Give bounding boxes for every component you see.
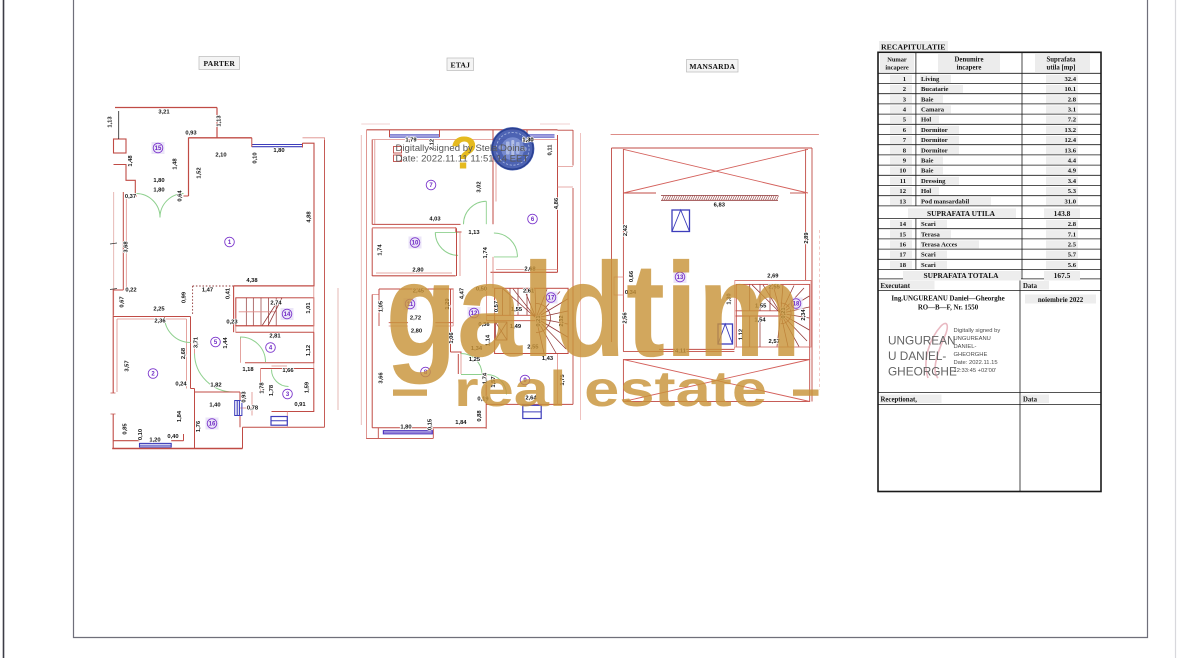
svg-text:1,01: 1,01 [306,302,312,314]
svg-text:incapere: incapere [885,65,908,72]
svg-text:DANIEL-: DANIEL- [954,344,977,350]
svg-text:2,89: 2,89 [804,232,810,244]
svg-text:1,76: 1,76 [196,420,202,432]
svg-text:Dormitor: Dormitor [921,137,948,144]
svg-text:1,48: 1,48 [173,158,179,170]
svg-text:3,66: 3,66 [379,372,385,384]
svg-text:Bucatarie: Bucatarie [921,86,949,93]
svg-text:Digitally signed by Stela Doin: Digitally signed by Stela Doina [396,143,526,154]
svg-text:Suprafata: Suprafata [1046,57,1076,64]
svg-text:2,10: 2,10 [215,153,226,159]
svg-text:13.6: 13.6 [1064,147,1076,154]
svg-text:1,13: 1,13 [217,115,223,127]
svg-text:15: 15 [155,146,162,152]
svg-text:2.8: 2.8 [1068,96,1077,103]
svg-text:Pod mansardabil: Pod mansardabil [921,198,969,205]
svg-text:4,03: 4,03 [429,217,441,223]
svg-text:1,84: 1,84 [177,410,183,422]
svg-text:real estate: real estate [454,361,767,417]
svg-text:12: 12 [899,188,906,195]
svg-text:0,41: 0,41 [226,287,232,299]
svg-text:incapere: incapere [957,65,982,72]
svg-text:3.1: 3.1 [1068,107,1076,114]
svg-text:RECAPITULATIE: RECAPITULATIE [881,42,945,51]
svg-text:GHEORGHE: GHEORGHE [954,352,988,358]
svg-text:1,78: 1,78 [269,384,275,396]
svg-text:0,78: 0,78 [247,406,259,412]
svg-text:GHEORGHE: GHEORGHE [888,365,957,379]
svg-text:1,66: 1,66 [282,368,294,374]
svg-text:1,40: 1,40 [209,403,220,409]
svg-text:MANSARDA: MANSARDA [689,62,735,71]
svg-text:0,11: 0,11 [548,144,554,156]
svg-text:Hol: Hol [921,117,931,124]
svg-text:1,74: 1,74 [378,244,384,256]
svg-text:0,10: 0,10 [138,429,144,440]
svg-text:4.4: 4.4 [1068,158,1077,165]
svg-text:13.2: 13.2 [1064,127,1076,134]
svg-text:1,80: 1,80 [153,188,164,194]
svg-text:Living: Living [921,76,940,83]
svg-text:3.4: 3.4 [1068,178,1077,185]
svg-text:U DANIEL-: U DANIEL- [888,349,946,363]
svg-text:Terasa Acces: Terasa Acces [921,242,958,249]
svg-text:14: 14 [899,221,906,228]
svg-text:Terasa: Terasa [921,231,941,238]
svg-text:Baie: Baie [921,158,934,165]
svg-text:1,44: 1,44 [223,337,229,349]
svg-text:15: 15 [899,231,906,238]
svg-text:3,71: 3,71 [194,336,200,348]
svg-text:1,30: 1,30 [522,138,533,144]
svg-text:Numar: Numar [887,57,907,64]
svg-text:31.0: 31.0 [1064,198,1076,205]
svg-text:2.8: 2.8 [1068,221,1077,228]
svg-text:0,64: 0,64 [178,190,184,202]
svg-text:16: 16 [209,422,216,428]
svg-text:1,80: 1,80 [273,148,284,154]
svg-text:32.4: 32.4 [1064,76,1076,83]
svg-text:Dormitor: Dormitor [921,127,948,134]
svg-text:1,05: 1,05 [379,300,385,312]
svg-text:0,85: 0,85 [123,423,129,435]
svg-text:1,20: 1,20 [149,438,160,444]
svg-text:5.3: 5.3 [1068,188,1077,195]
svg-text:5.6: 5.6 [1068,262,1077,269]
svg-text:2,68: 2,68 [181,347,187,359]
svg-text:4,38: 4,38 [246,278,258,284]
svg-text:0,15: 0,15 [428,418,434,430]
svg-text:10: 10 [899,168,906,175]
svg-text:2,34: 2,34 [801,309,807,321]
svg-text:3,68: 3,68 [124,241,130,253]
svg-text:Scari: Scari [921,221,936,228]
svg-text:0,24: 0,24 [175,382,187,388]
svg-text:12:33:45 +02'00': 12:33:45 +02'00' [954,368,997,374]
svg-text:0,37: 0,37 [125,194,136,200]
svg-text:0,10: 0,10 [253,152,259,163]
svg-text:0,23: 0,23 [226,320,238,326]
svg-text:1,47: 1,47 [202,288,213,294]
svg-text:2,36: 2,36 [154,319,166,325]
svg-text:SUPRAFATA TOTALA: SUPRAFATA TOTALA [924,271,1000,280]
svg-text:17: 17 [899,252,906,259]
svg-text:2,74: 2,74 [270,301,282,307]
svg-text:4.9: 4.9 [1068,168,1077,175]
svg-text:0,91: 0,91 [294,402,306,408]
svg-text:11: 11 [900,178,906,185]
svg-text:1,59: 1,59 [305,381,311,393]
svg-text:5.7: 5.7 [1068,252,1077,259]
svg-text:2,12: 2,12 [430,139,436,150]
svg-text:0,93: 0,93 [185,131,197,137]
svg-text:2,81: 2,81 [269,334,281,340]
svg-text:1,13: 1,13 [108,116,114,128]
svg-text:18: 18 [899,262,906,269]
svg-text:1,80: 1,80 [153,178,164,184]
svg-text:2.5: 2.5 [1068,242,1077,249]
svg-text:3,02: 3,02 [477,181,483,192]
svg-text:Denumire: Denumire [955,57,984,64]
svg-text:Dressing: Dressing [921,178,946,185]
svg-text:RO—B—F, Nr. 1550: RO—B—F, Nr. 1550 [918,305,979,312]
svg-text:noiembrie 2022: noiembrie 2022 [1038,297,1084,304]
svg-text:UNGUREAN: UNGUREAN [888,334,956,348]
svg-text:Baie: Baie [921,168,934,175]
svg-text:Camara: Camara [921,107,945,114]
svg-text:1,78: 1,78 [260,382,266,394]
svg-text:7.1: 7.1 [1068,231,1076,238]
svg-text:1,80: 1,80 [400,425,411,431]
svg-text:14: 14 [284,312,291,318]
svg-text:3,21: 3,21 [158,110,170,116]
svg-text:PARTER: PARTER [204,59,236,68]
svg-text:ETAJ: ETAJ [450,61,470,70]
svg-text:1,79: 1,79 [405,138,417,144]
svg-text:12.4: 12.4 [1064,137,1076,144]
svg-text:Date: 2022.11.11 11:51:14 EET: Date: 2022.11.11 11:51:14 EET [396,154,529,165]
svg-text:1,52: 1,52 [197,167,203,178]
svg-text:0,99: 0,99 [182,291,188,303]
svg-text:1,84: 1,84 [455,420,467,426]
svg-text:Ing.UNGUREANU Daniel—Gheorghe: Ing.UNGUREANU Daniel—Gheorghe [891,296,1004,303]
svg-text:Baie: Baie [921,96,934,103]
svg-text:Date: 2022.11.15: Date: 2022.11.15 [954,360,998,366]
svg-text:Scari: Scari [921,252,936,259]
svg-text:0,93: 0,93 [242,391,248,403]
svg-text:0,40: 0,40 [167,434,178,440]
svg-text:0,67: 0,67 [120,296,126,307]
svg-text:13: 13 [899,198,906,205]
svg-text:Data: Data [1023,397,1038,404]
svg-text:Data: Data [1023,283,1038,290]
svg-text:0,22: 0,22 [125,288,136,294]
svg-text:Receptionat,: Receptionat, [881,397,918,404]
svg-text:2,42: 2,42 [623,225,629,236]
svg-text:Executant: Executant [881,283,911,290]
svg-text:4,86: 4,86 [554,197,560,209]
svg-text:7.2: 7.2 [1068,117,1077,124]
svg-text:1,12: 1,12 [306,345,312,356]
svg-text:143.8: 143.8 [1054,209,1071,218]
svg-text:UNGUREANU: UNGUREANU [954,336,991,342]
svg-text:Digitally signed by: Digitally signed by [954,328,1001,334]
svg-text:1,18: 1,18 [242,367,254,373]
svg-text:6,83: 6,83 [714,203,726,209]
svg-text:Scari: Scari [921,262,936,269]
svg-text:167.5: 167.5 [1054,271,1071,280]
svg-text:10.1: 10.1 [1064,86,1076,93]
svg-text:3,57: 3,57 [125,360,131,371]
svg-text:1,82: 1,82 [210,383,221,389]
svg-text:SUPRAFATA UTILA: SUPRAFATA UTILA [927,209,996,218]
svg-text:4,88: 4,88 [307,211,313,223]
svg-text:1,48: 1,48 [128,155,134,167]
svg-text:Hol: Hol [921,188,931,195]
svg-text:16: 16 [899,242,906,249]
svg-text:1: 1 [903,76,906,83]
svg-text:Dormitor: Dormitor [921,147,948,154]
svg-text:utila [mp]: utila [mp] [1047,65,1076,72]
svg-text:2,25: 2,25 [153,307,165,313]
